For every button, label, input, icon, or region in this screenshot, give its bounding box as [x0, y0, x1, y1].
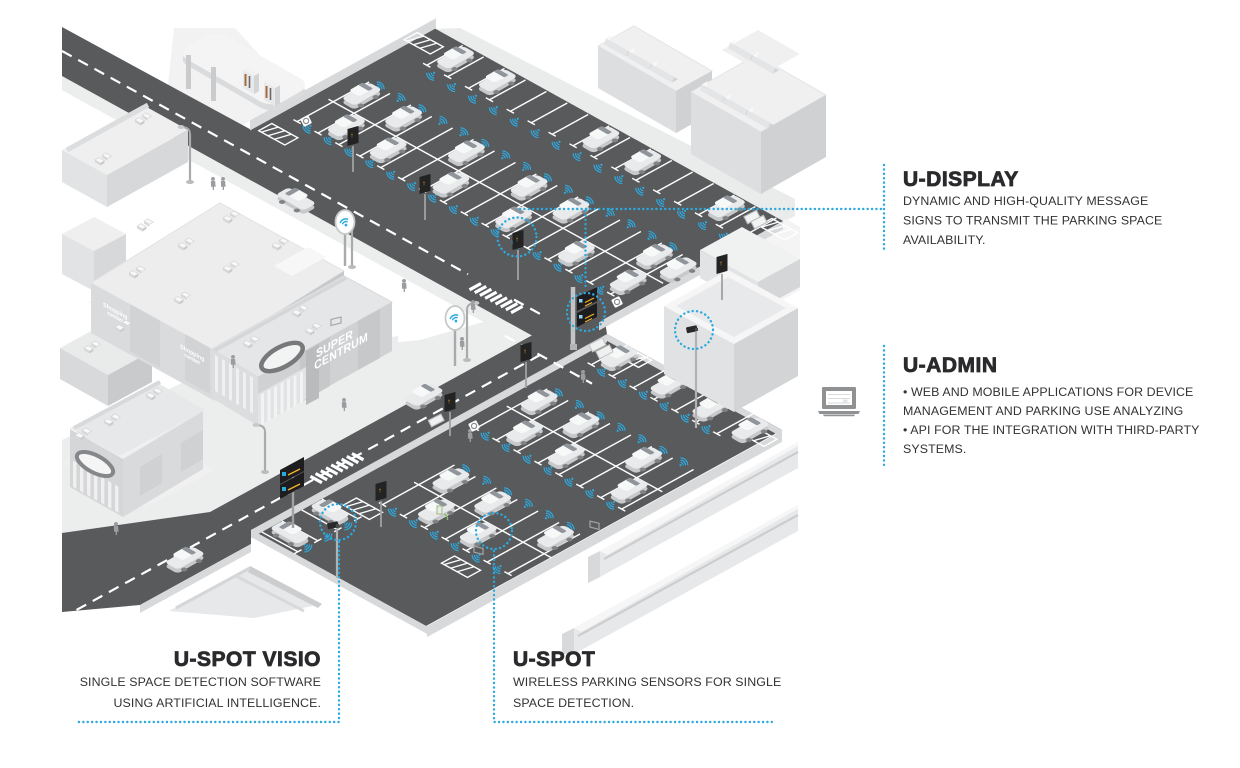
- svg-text:SPACE DETECTION.: SPACE DETECTION.: [513, 696, 634, 710]
- svg-text:USING ARTIFICIAL INTELLIGENCE.: USING ARTIFICIAL INTELLIGENCE.: [114, 696, 322, 710]
- svg-text:↑: ↑: [378, 488, 382, 495]
- svg-text:↑: ↑: [719, 261, 723, 268]
- svg-text:U-SPOT: U-SPOT: [513, 648, 595, 671]
- svg-text:SYSTEMS.: SYSTEMS.: [903, 442, 966, 456]
- svg-text:SINGLE SPACE DETECTION SOFTWAR: SINGLE SPACE DETECTION SOFTWARE: [80, 675, 321, 689]
- svg-text:↑: ↑: [422, 181, 426, 188]
- svg-text:↑: ↑: [523, 349, 527, 356]
- svg-text:• API FOR THE INTEGRATION WITH: • API FOR THE INTEGRATION WITH THIRD-PAR…: [903, 423, 1200, 437]
- svg-text:U-DISPLAY: U-DISPLAY: [903, 168, 1019, 191]
- svg-text:WIRELESS PARKING SENSORS FOR S: WIRELESS PARKING SENSORS FOR SINGLE: [513, 675, 781, 689]
- svg-text:SIGNS TO TRANSMIT THE PARKING: SIGNS TO TRANSMIT THE PARKING SPACE: [903, 214, 1162, 228]
- svg-text:↑: ↑: [515, 237, 519, 244]
- svg-text:AVAILABILITY.: AVAILABILITY.: [903, 233, 986, 247]
- svg-text:• WEB AND MOBILE APPLICATIONS: • WEB AND MOBILE APPLICATIONS FOR DEVICE: [903, 385, 1193, 399]
- svg-text:U-ADMIN: U-ADMIN: [903, 354, 997, 377]
- svg-text:MANAGEMENT AND PARKING USE ANA: MANAGEMENT AND PARKING USE ANALYZING: [903, 404, 1183, 418]
- svg-text:↑: ↑: [447, 399, 451, 406]
- svg-text:↑: ↑: [350, 133, 354, 140]
- svg-text:U-SPOT VISIO: U-SPOT VISIO: [174, 648, 321, 671]
- svg-text:DYNAMIC AND HIGH-QUALITY MESSA: DYNAMIC AND HIGH-QUALITY MESSAGE: [903, 194, 1148, 208]
